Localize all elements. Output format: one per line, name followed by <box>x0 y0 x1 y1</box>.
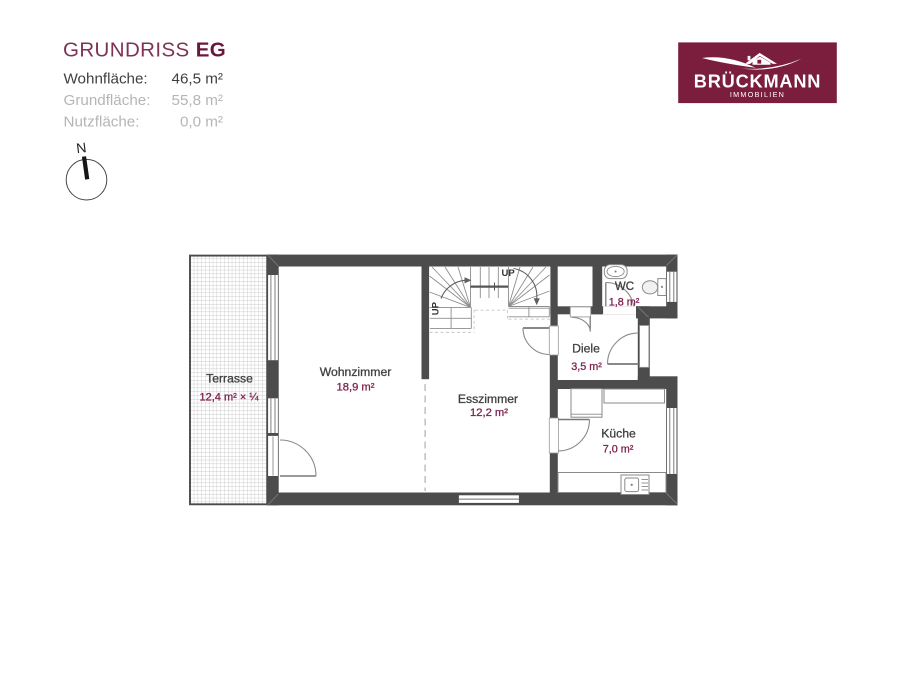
svg-text:18,9 m²: 18,9 m² <box>337 382 375 394</box>
svg-text:BRÜCKMANN: BRÜCKMANN <box>694 72 821 92</box>
svg-text:Wohnzimmer: Wohnzimmer <box>320 365 392 379</box>
svg-text:Wohnfläche:: Wohnfläche: <box>64 71 148 88</box>
svg-text:7,0 m²: 7,0 m² <box>603 444 634 456</box>
svg-text:UP: UP <box>502 268 516 279</box>
svg-text:12,2 m²: 12,2 m² <box>470 407 508 419</box>
svg-text:Terrasse: Terrasse <box>206 372 253 386</box>
svg-text:55,8 m²: 55,8 m² <box>172 92 224 109</box>
svg-text:Nutzfläche:: Nutzfläche: <box>64 114 140 131</box>
svg-text:12,4 m² × ¼: 12,4 m² × ¼ <box>199 392 259 404</box>
svg-text:0,0 m²: 0,0 m² <box>180 114 223 131</box>
svg-text:46,5 m²: 46,5 m² <box>172 71 224 88</box>
svg-text:Diele: Diele <box>572 342 600 356</box>
svg-text:1,8 m²: 1,8 m² <box>609 297 640 309</box>
svg-text:UP: UP <box>431 301 442 315</box>
svg-text:3,5 m²: 3,5 m² <box>571 361 602 373</box>
svg-text:N: N <box>75 139 87 156</box>
svg-text:Esszimmer: Esszimmer <box>458 392 518 406</box>
svg-text:Küche: Küche <box>601 427 636 441</box>
svg-text:GRUNDRISS EG: GRUNDRISS EG <box>63 39 226 62</box>
svg-text:IMMOBILIEN: IMMOBILIEN <box>730 90 785 99</box>
svg-text:WC: WC <box>615 281 634 293</box>
svg-text:Grundfläche:: Grundfläche: <box>64 92 151 109</box>
